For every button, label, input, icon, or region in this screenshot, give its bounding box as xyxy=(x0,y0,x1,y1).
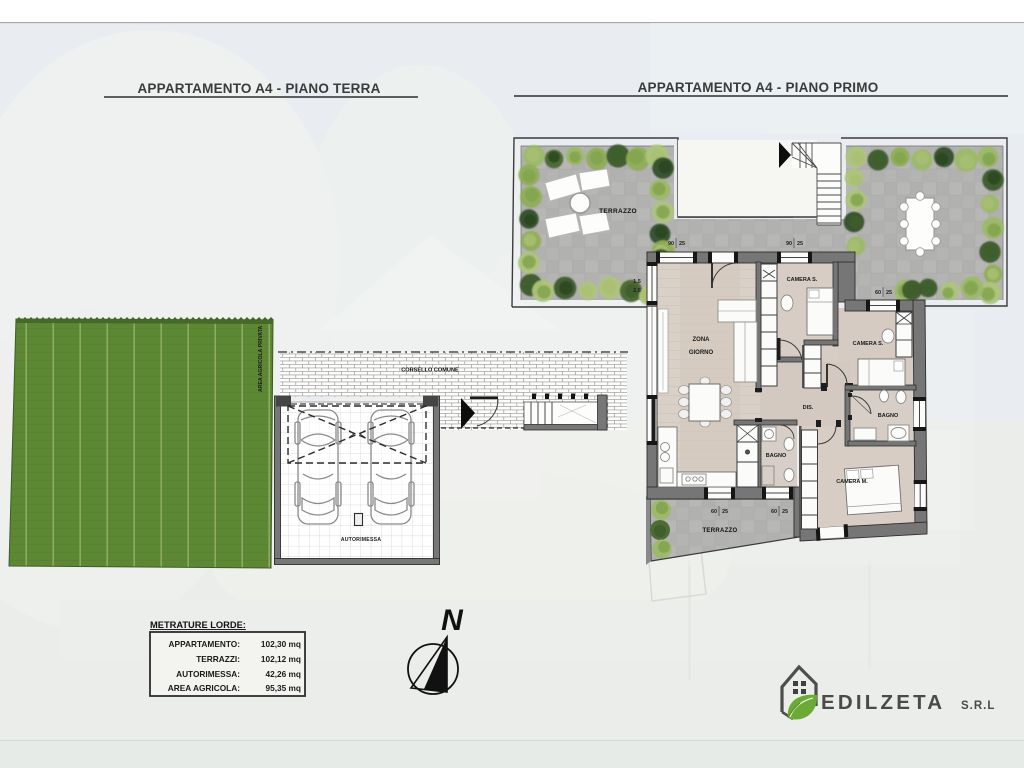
svg-text:25: 25 xyxy=(679,241,685,247)
svg-text:METRATURE LORDE:: METRATURE LORDE: xyxy=(150,620,246,630)
svg-text:102,30 mq: 102,30 mq xyxy=(261,639,301,649)
svg-text:BAGNO: BAGNO xyxy=(878,413,899,419)
svg-text:CORSELLO COMUNE: CORSELLO COMUNE xyxy=(401,368,459,374)
svg-text:AUTORIMESSA:: AUTORIMESSA: xyxy=(176,669,240,679)
svg-text:25: 25 xyxy=(797,241,803,247)
svg-text:AREA AGRICOLA PRIVATA: AREA AGRICOLA PRIVATA xyxy=(258,325,264,392)
svg-text:CAMERA M.: CAMERA M. xyxy=(836,479,868,485)
svg-text:25: 25 xyxy=(722,509,728,515)
svg-text:95,35 mq: 95,35 mq xyxy=(265,683,301,693)
svg-text:2.5: 2.5 xyxy=(633,288,641,294)
svg-text:60: 60 xyxy=(875,290,881,296)
svg-text:60: 60 xyxy=(711,509,717,515)
svg-text:90: 90 xyxy=(786,241,792,247)
svg-text:DIS.: DIS. xyxy=(803,405,814,411)
svg-text:ZONA: ZONA xyxy=(693,337,711,343)
svg-text:TERRAZZO: TERRAZZO xyxy=(702,528,737,534)
svg-text:TERRAZZO: TERRAZZO xyxy=(599,208,637,215)
svg-text:102,12 mq: 102,12 mq xyxy=(261,654,301,664)
svg-text:TERRAZZI:: TERRAZZI: xyxy=(196,654,240,664)
svg-text:60: 60 xyxy=(771,509,777,515)
svg-text:90: 90 xyxy=(668,241,674,247)
svg-text:GIORNO: GIORNO xyxy=(689,350,714,356)
svg-text:1.5: 1.5 xyxy=(633,279,641,285)
svg-text:APPARTAMENTO A4 - PIANO TERRA: APPARTAMENTO A4 - PIANO TERRA xyxy=(137,81,380,96)
svg-text:APPARTAMENTO:: APPARTAMENTO: xyxy=(169,639,240,649)
svg-text:AREA AGRICOLA:: AREA AGRICOLA: xyxy=(168,683,240,693)
svg-text:CAMERA S.: CAMERA S. xyxy=(853,341,884,347)
svg-text:42,26 mq: 42,26 mq xyxy=(265,669,301,679)
svg-text:N: N xyxy=(441,604,464,637)
svg-text:APPARTAMENTO A4 - PIANO PRIMO: APPARTAMENTO A4 - PIANO PRIMO xyxy=(638,80,879,95)
svg-text:AUTORIMESSA: AUTORIMESSA xyxy=(341,537,381,543)
svg-text:BAGNO: BAGNO xyxy=(766,453,787,459)
svg-text:EDILZETA: EDILZETA xyxy=(821,691,945,714)
svg-text:S.R.L: S.R.L xyxy=(961,700,995,712)
svg-text:CAMERA S.: CAMERA S. xyxy=(787,277,818,283)
svg-text:25: 25 xyxy=(886,290,892,296)
svg-text:25: 25 xyxy=(782,509,788,515)
